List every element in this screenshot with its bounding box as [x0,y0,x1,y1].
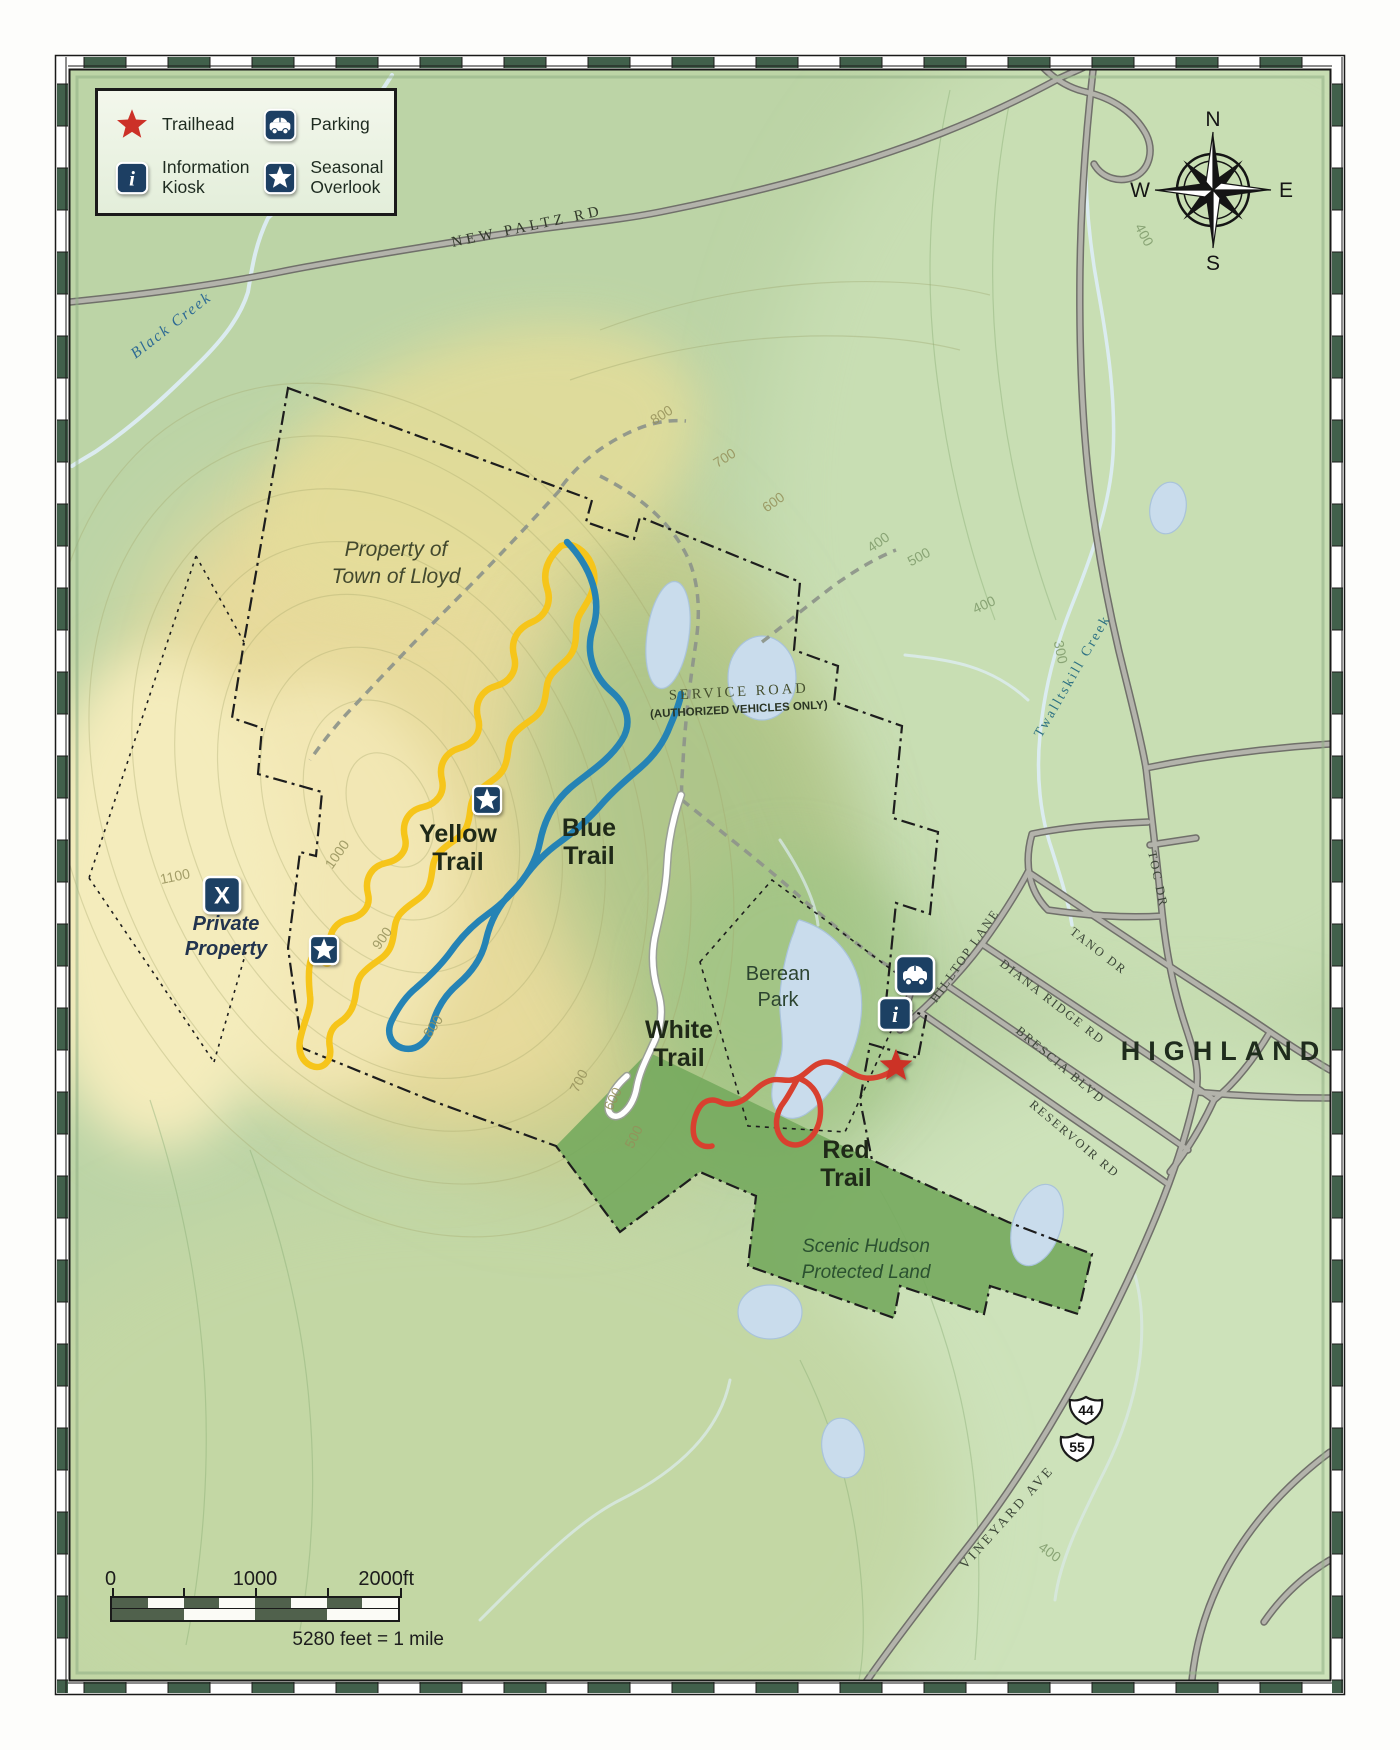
parking-icon [896,956,934,994]
overlook-icon [262,160,298,196]
legend-trailhead-label: Trailhead [162,115,234,135]
white-trail-label: White [645,1016,713,1044]
scale-tick-0: 0 [105,1568,116,1591]
svg-text:i: i [129,166,135,190]
red-trail-label: Red [822,1136,869,1164]
trail-map-page: X i [0,0,1400,1750]
info-kiosk-icon: i [879,998,911,1030]
map-content: X i [0,0,1400,1750]
scenic-hudson-label: Protected Land [802,1262,932,1283]
x-marker-icon: X [204,877,240,913]
svg-text:44: 44 [1078,1402,1094,1418]
berean-park-label: Berean [746,963,811,985]
private-property-label: Property [185,938,268,960]
private-property-label: Private [193,913,260,935]
blue-trail-label: Blue [562,814,616,842]
scale-bar-graphic [110,1596,400,1622]
legend-parking-label: Parking [310,115,369,135]
legend-overlook-label: Seasonal Overlook [310,158,383,197]
scale-bar: 0 1000 2000ft 5280 feet = 1 mile [110,1568,400,1651]
white-trail-label: Trail [653,1044,704,1072]
scale-caption: 5280 feet = 1 mile [154,1629,444,1651]
yellow-trail-label: Yellow [419,820,497,848]
blue-trail-label: Trail [563,842,614,870]
svg-text:X: X [214,883,230,910]
terrain-shading [0,0,1400,1750]
town-of-lloyd-label: Property of [345,538,450,561]
svg-text:i: i [892,1002,899,1027]
compass-west-label: W [1130,179,1150,202]
trailhead-star-icon [114,107,150,143]
overlook-icon [310,936,338,964]
scale-tick-2000: 2000ft [358,1568,414,1591]
compass-north-label: N [1205,108,1220,131]
trail-map-canvas: X i [0,0,1400,1750]
legend-item-trailhead: Trailhead [114,107,262,143]
yellow-trail-label: Trail [432,848,483,876]
town-of-lloyd-label: Town of Lloyd [332,565,462,588]
legend-information-line2: Kiosk [162,178,250,198]
legend-information-line1: Information [162,158,250,178]
svg-text:55: 55 [1069,1439,1085,1455]
legend-overlook-line1: Seasonal [310,158,383,178]
overlook-icon [473,786,501,814]
red-trail-label: Trail [820,1164,871,1192]
legend-overlook-line2: Overlook [310,178,383,198]
berean-park-label: Park [757,989,799,1011]
legend-item-parking: Parking [262,107,384,143]
legend-box: Trailhead Parking i Information Kiosk [95,88,397,216]
legend-information-label: Information Kiosk [162,158,250,197]
compass-south-label: S [1206,252,1220,275]
parking-icon [262,107,298,143]
highland-label: HIGHLAND [1121,1036,1328,1066]
compass-east-label: E [1279,179,1293,202]
scenic-hudson-label: Scenic Hudson [802,1236,930,1257]
info-kiosk-icon: i [114,160,150,196]
legend-item-overlook: Seasonal Overlook [262,158,384,197]
legend-item-information: i Information Kiosk [114,158,262,197]
